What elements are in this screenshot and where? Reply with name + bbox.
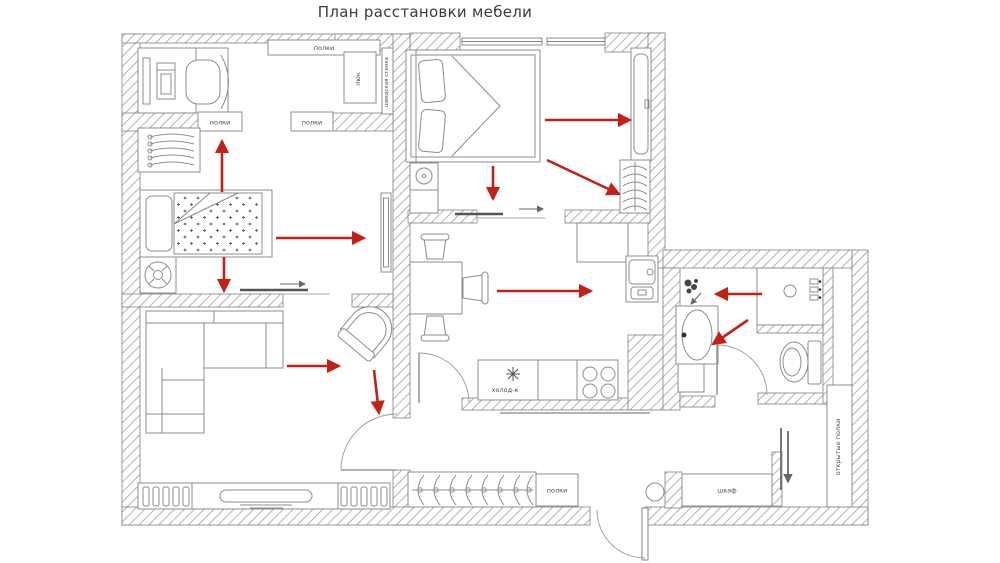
living-room [138, 298, 401, 509]
snowflake-icon [506, 367, 520, 381]
armchair [336, 298, 401, 363]
label-shelves-left: полки [210, 119, 231, 127]
floor-plan-canvas: План расстановки мебели [0, 0, 1000, 563]
kitchen-counter-block [577, 223, 628, 262]
nightstand [410, 163, 438, 213]
plant-arrow [691, 293, 701, 304]
double-bed [406, 50, 540, 162]
tall-wardrobe [631, 48, 651, 160]
monitor [143, 58, 150, 104]
label-shelves-right: полки [302, 119, 323, 127]
tv-console [138, 483, 390, 509]
entrance-door [597, 508, 648, 560]
bedside-stool [140, 257, 176, 293]
pouf [646, 483, 664, 501]
toilet [780, 341, 821, 384]
washing-machine [676, 306, 718, 364]
label-open-shelves: открытые полки [834, 419, 842, 475]
bathroom-door [717, 345, 767, 395]
label-hallway-shelves: полки [547, 487, 568, 495]
arrow-armchair-down [374, 370, 379, 413]
label-shelves-top: полки [314, 44, 335, 52]
arrow-bedroom-diagonal [547, 160, 619, 194]
child-bed [140, 190, 272, 257]
plant-icon [685, 279, 699, 294]
kitchen-row [478, 360, 618, 400]
label-hatch: люк [354, 72, 362, 86]
label-wall-bars: шведская стенка [384, 57, 390, 107]
bath-counter [757, 268, 823, 325]
bedroom-window [462, 38, 605, 45]
kitchen-door [419, 353, 469, 403]
dining-table [410, 262, 462, 314]
sliding-door-1 [240, 284, 330, 294]
bedroom-hanger-closet [620, 160, 650, 213]
pillow [146, 196, 172, 251]
living-room-door [341, 414, 397, 470]
floor-plan-drawing: полки полки полки люк шведская стенка хо… [0, 0, 1000, 563]
corner-sofa [146, 311, 283, 433]
hanger-wardrobe [138, 128, 200, 172]
tv-flat [220, 490, 312, 502]
hallway [408, 385, 852, 560]
bath-cabinet [678, 364, 704, 392]
label-fridge: холод-к [492, 386, 519, 394]
kitchen-sink [626, 256, 658, 302]
label-wardrobe: шкаф [717, 487, 737, 495]
hallway-hanger-closet [408, 472, 536, 507]
wall-tv [381, 193, 391, 272]
kitchen [410, 223, 658, 413]
